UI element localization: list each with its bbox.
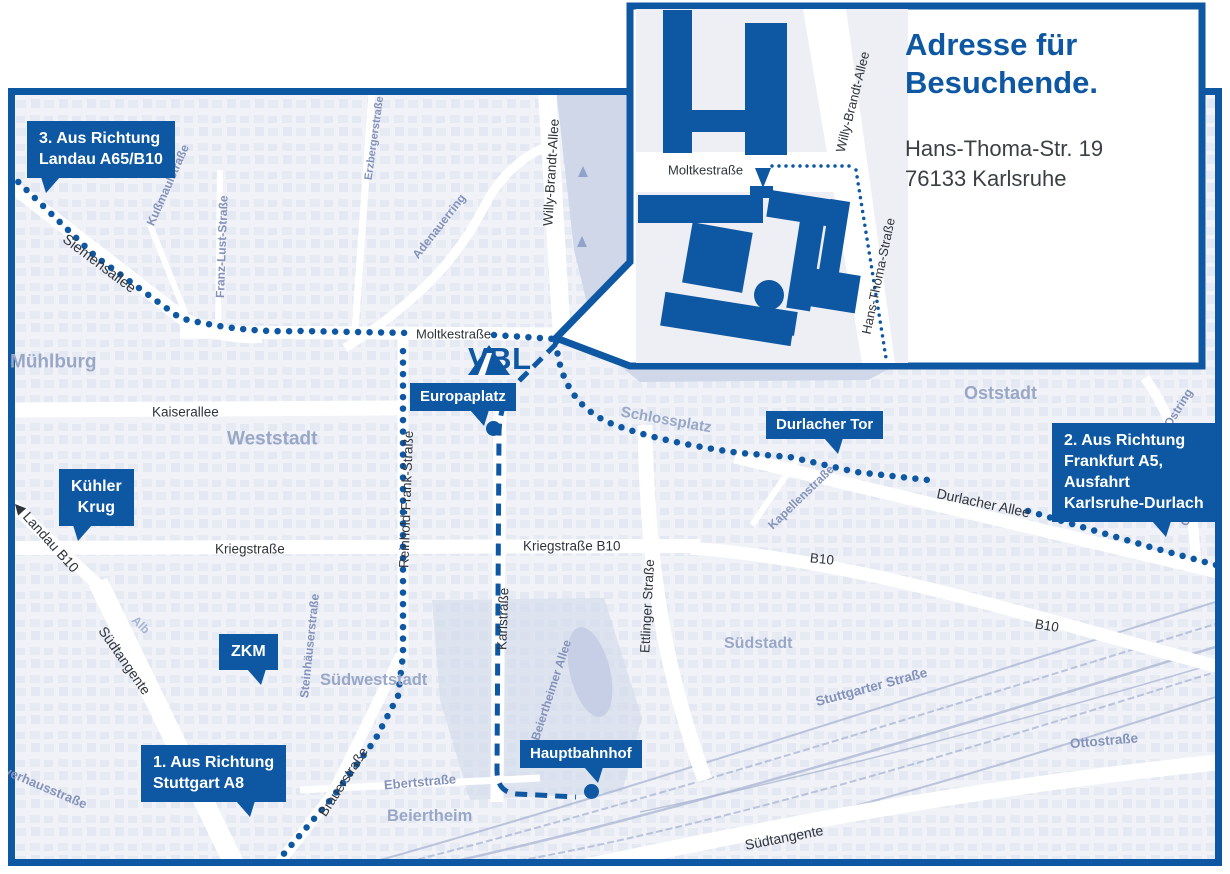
map-label-reinhold-frank-stra-e: Reinhold-Frank-Straße (397, 431, 415, 569)
callout-landau-line: Landau A65/B10 (39, 149, 163, 170)
callout-kuehler-krug-line: Kühler (71, 476, 122, 497)
map-label-siemensallee: Siemensallee (60, 232, 138, 296)
callout-europaplatz-line: Europaplatz (420, 388, 506, 405)
map-label-m-hlburg: Mühlburg (10, 353, 97, 372)
map-label-schlossplatz: Schlossplatz (620, 405, 713, 436)
map-label-karlstra-e: Karlstraße (495, 588, 511, 651)
map-label-durlacher-allee: Durlacher Allee (936, 486, 1032, 519)
map-graphic: SiemensalleeKußmaulstraßeFranz-Lust-Stra… (0, 0, 1230, 874)
map-label-weststadt: Weststadt (227, 430, 317, 449)
map-label-kriegstra-e: Kriegstraße (215, 542, 285, 556)
map-label-willy-brandt-allee: Willy-Brandt-Allee (541, 119, 561, 227)
map-label-s-dstadt: Südstadt (724, 636, 792, 652)
callout-durlacher-tor-line: Durlacher Tor (776, 416, 873, 433)
europaplatz-stop-dot (486, 421, 501, 436)
map-label-kriegstra-e-b10: Kriegstraße B10 (523, 539, 621, 553)
callout-landau-pointer-icon (41, 177, 60, 193)
inset-heading-line1: Adresse für (905, 26, 1098, 64)
callout-zkm-pointer-icon (247, 669, 266, 685)
map-label-b10: B10 (809, 551, 834, 567)
inset-address: Hans-Thoma-Str. 19 76133 Karlsruhe (905, 134, 1103, 194)
callout-frankfurt-pointer-icon (1152, 521, 1171, 537)
callout-zkm: ZKM (219, 634, 278, 670)
inset-address-street: Hans-Thoma-Str. 19 (905, 134, 1103, 164)
callout-stuttgart-pointer-icon (236, 801, 255, 817)
callout-frankfurt-line: 2. Aus Richtung (1064, 430, 1204, 451)
callout-stuttgart-line: 1. Aus Richtung (153, 752, 274, 773)
callout-landau: 3. Aus RichtungLandau A65/B10 (27, 121, 175, 178)
map-label-beiertheimer-allee: Beiertheimer Allee (529, 638, 573, 742)
map-label-moltkestra-e: Moltkestraße (416, 328, 491, 341)
map-label-beiertheim: Beiertheim (387, 808, 472, 825)
inset-heading: Adresse für Besuchende. (905, 26, 1098, 102)
map-label-s-dweststadt: Südweststadt (320, 672, 427, 689)
map-label-kaiserallee: Kaiserallee (152, 405, 219, 419)
callout-kuehler-krug-pointer-icon (73, 525, 92, 541)
callout-kuehler-krug-line: Krug (71, 497, 122, 518)
callout-hauptbahnhof-line: Hauptbahnhof (530, 745, 632, 762)
vbl-triangle-icon (468, 345, 510, 375)
map-label-ottostra-e: Ottostraße (1069, 731, 1138, 750)
map-label-franz-lust-stra-e: Franz-Lust-Straße (214, 195, 230, 298)
map-label-s-dtangente: Südtangente (96, 624, 153, 697)
callout-durlacher-tor: Durlacher Tor (766, 411, 883, 439)
map-label-b10: B10 (1034, 617, 1060, 634)
map-label-pulverhausstra-e: Pulverhausstraße (8, 756, 89, 811)
callout-hauptbahnhof-pointer-icon (584, 767, 603, 783)
map-label-stuttgarter-stra-e: Stuttgarter Straße (814, 666, 928, 709)
inset-heading-line2: Besuchende. (905, 64, 1098, 102)
map-label-erzbergerstra-e: Erzbergerstraße (364, 96, 387, 181)
callout-frankfurt-line: Karlsruhe-Durlach (1064, 493, 1204, 514)
map-label-ettlinger-stra-e: Ettlinger Straße (638, 559, 656, 653)
map-label-brauerstra-e: Brauerstraße (316, 745, 370, 818)
map-label-alb: Alb (130, 614, 152, 636)
map-label-layer: SiemensalleeKußmaulstraßeFranz-Lust-Stra… (8, 88, 1222, 866)
callout-stuttgart: 1. Aus RichtungStuttgart A8 (141, 745, 286, 802)
callout-frankfurt: 2. Aus RichtungFrankfurt A5,AusfahrtKarl… (1052, 423, 1216, 522)
callout-europaplatz: Europaplatz (410, 383, 516, 411)
callout-frankfurt-line: Ausfahrt (1064, 472, 1204, 493)
callout-durlacher-tor-pointer-icon (824, 438, 843, 454)
map-label-ebertstra-e: Ebertstraße (383, 772, 456, 791)
vbl-logo: VBL (468, 345, 532, 373)
callout-hauptbahnhof: Hauptbahnhof (520, 740, 642, 768)
callout-frankfurt-line: Frankfurt A5, (1064, 451, 1204, 472)
map-label-adenauerring: Adenauerring (410, 192, 467, 261)
callout-zkm-line: ZKM (231, 641, 266, 662)
callout-stuttgart-line: Stuttgart A8 (153, 773, 274, 794)
map-label-steinh-userstra-e: Steinhäuserstraße (298, 593, 321, 698)
hauptbahnhof-stop-dot (584, 784, 599, 799)
callout-landau-line: 3. Aus Richtung (39, 128, 163, 149)
map-label-kapellenstra-e: Kapellenstraße (766, 463, 836, 531)
callout-kuehler-krug: KühlerKrug (59, 469, 134, 526)
map-label-oststadt: Oststadt (964, 384, 1037, 402)
inset-address-city: 76133 Karlsruhe (905, 164, 1103, 194)
map-label-s-dtangente: Südtangente (744, 823, 825, 852)
